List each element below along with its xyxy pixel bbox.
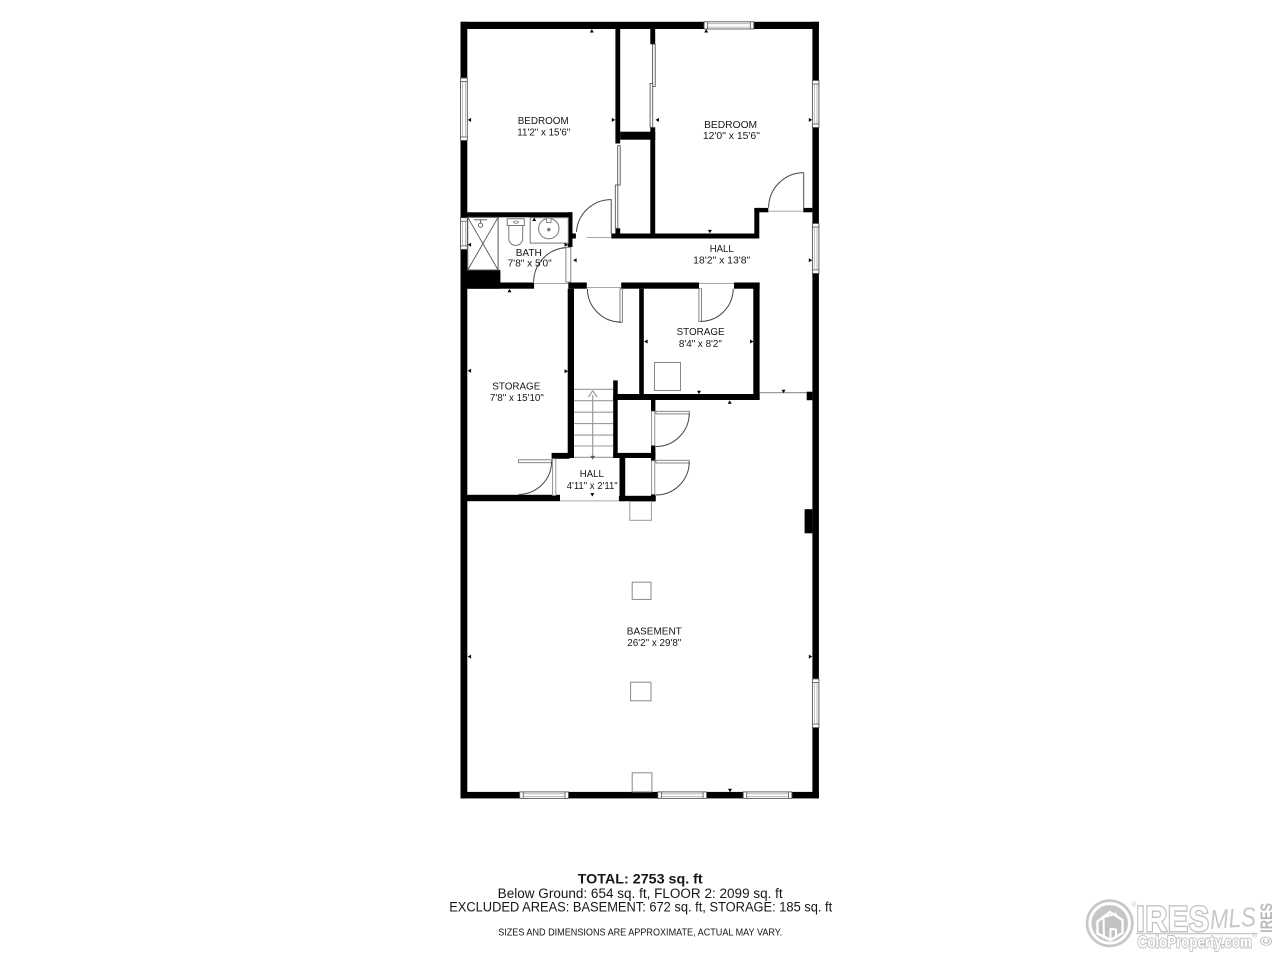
svg-text:7'8" x 5'0": 7'8" x 5'0" (508, 259, 552, 270)
svg-text:BASEMENT: BASEMENT (627, 627, 682, 638)
svg-text:8'4" x 8'2": 8'4" x 8'2" (679, 339, 722, 350)
svg-text:BEDROOM: BEDROOM (518, 116, 569, 127)
svg-text:12'0" x 15'6": 12'0" x 15'6" (703, 131, 760, 142)
svg-text:HALL: HALL (710, 244, 734, 255)
svg-text:© IRES: © IRES (1258, 903, 1276, 946)
svg-text:BEDROOM: BEDROOM (704, 120, 757, 131)
svg-text:SIZES AND DIMENSIONS ARE APPRO: SIZES AND DIMENSIONS ARE APPROXIMATE, AC… (498, 928, 782, 939)
svg-text:7'8" x 15'10": 7'8" x 15'10" (490, 393, 544, 404)
svg-text:EXCLUDED AREAS: BASEMENT: 672: EXCLUDED AREAS: BASEMENT: 672 sq. ft, ST… (449, 900, 832, 915)
svg-text:MLS: MLS (1209, 902, 1257, 935)
svg-text:18'2" x 13'8": 18'2" x 13'8" (693, 255, 750, 266)
svg-text:11'2" x 15'6": 11'2" x 15'6" (517, 128, 570, 139)
svg-text:4'11" x 2'11": 4'11" x 2'11" (567, 481, 618, 492)
svg-text:STORAGE: STORAGE (677, 327, 725, 338)
svg-text:®: ® (1252, 932, 1258, 940)
svg-text:BATH: BATH (516, 248, 542, 259)
svg-text:TOTAL: 2753 sq. ft: TOTAL: 2753 sq. ft (578, 872, 704, 887)
svg-text:STORAGE: STORAGE (492, 381, 540, 392)
svg-text:HALL: HALL (580, 469, 604, 480)
svg-text:26'2" x 29'8": 26'2" x 29'8" (627, 638, 681, 649)
svg-text:ColoProperty.com: ColoProperty.com (1138, 932, 1252, 951)
